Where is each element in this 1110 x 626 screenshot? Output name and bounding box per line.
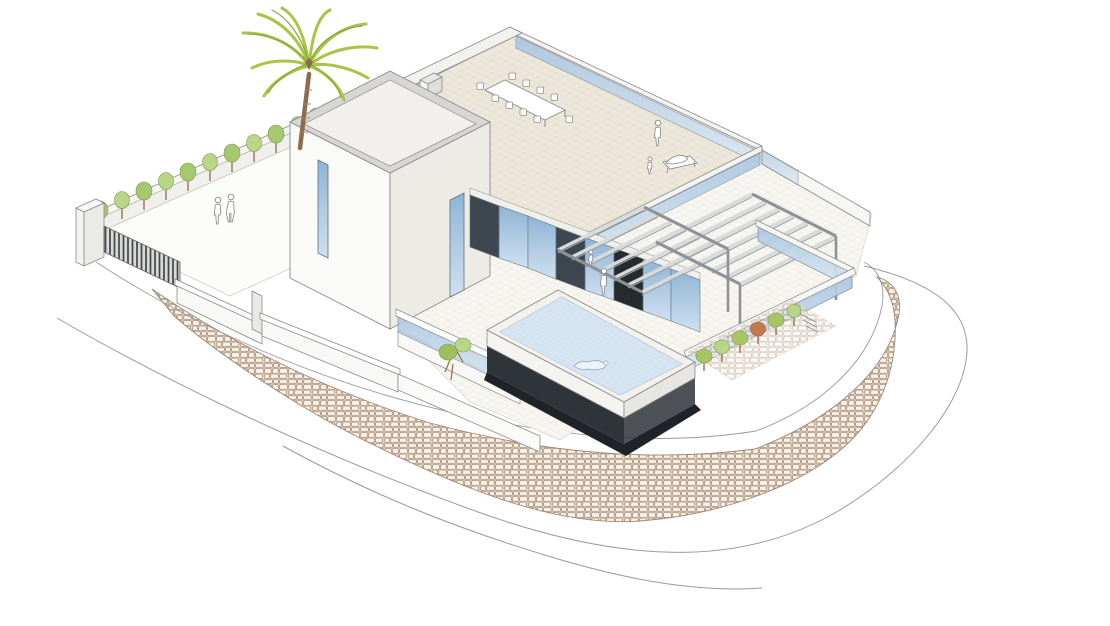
corner-pillar bbox=[76, 199, 104, 266]
villa-axonometric-drawing bbox=[0, 0, 1110, 626]
dark-panel bbox=[556, 227, 585, 290]
glass-panel bbox=[528, 216, 556, 279]
cube-window-left bbox=[318, 160, 328, 258]
main-volume bbox=[290, 71, 490, 329]
wall-post bbox=[252, 291, 262, 334]
palm-fronds bbox=[243, 8, 377, 100]
dark-panel bbox=[470, 195, 499, 258]
glass-panel bbox=[499, 206, 528, 268]
architectural-rendering bbox=[0, 0, 1110, 626]
cube-window-right bbox=[450, 193, 464, 297]
